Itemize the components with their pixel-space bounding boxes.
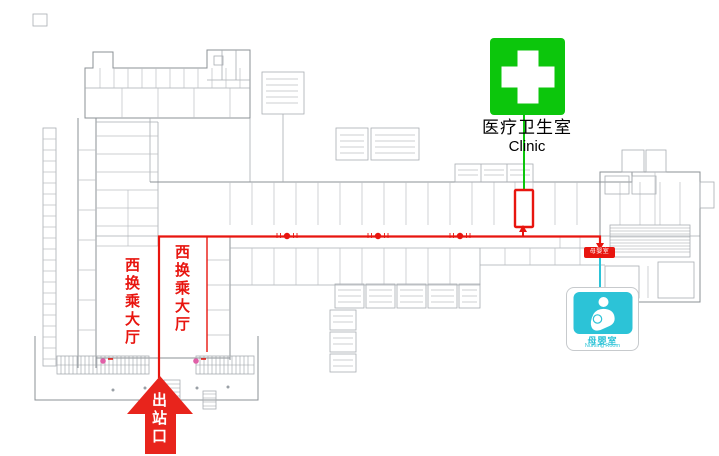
first-aid-cross-icon: [501, 66, 554, 87]
route-dot: [375, 233, 381, 239]
clinic-label-en: Clinic: [462, 137, 592, 156]
route-path: [159, 237, 600, 379]
plan-stub: [33, 14, 47, 26]
exit-gate-label: 出站口: [151, 392, 169, 446]
clinic-sign: [490, 38, 565, 115]
plan-annotation-boxes: [262, 72, 533, 372]
clinic-label-zh: 医疗卫生室: [462, 118, 592, 137]
left-wing: [78, 118, 158, 368]
left-platform-edge: [43, 128, 56, 366]
clinic-labels: 医疗卫生室 Clinic: [462, 118, 592, 156]
nursing-label-en: Nursing Room: [567, 343, 638, 349]
west-transfer-hall-label-left: 西换乘大厅: [123, 257, 140, 347]
hall-exit-markers: [100, 358, 206, 364]
station-floor-plan-map: 医疗卫生室 Clinic 母婴室 母婴室 Nursing Room 西换乘大厅 …: [0, 0, 719, 456]
nursing-room-sign: 母婴室 Nursing Room: [566, 287, 639, 351]
nursing-room-marker-badge: 母婴室: [584, 247, 615, 258]
transfer-halls: [96, 236, 230, 360]
route-dot: [457, 233, 463, 239]
clinic-room-highlight-box: [515, 190, 533, 227]
mother-nursing-baby-icon: [573, 292, 632, 334]
west-transfer-hall-label-right: 西换乘大厅: [173, 244, 190, 334]
right-block: [600, 150, 714, 302]
top-left-wing: [85, 50, 250, 182]
route-dot: [284, 233, 290, 239]
floor-plan: [0, 0, 719, 456]
